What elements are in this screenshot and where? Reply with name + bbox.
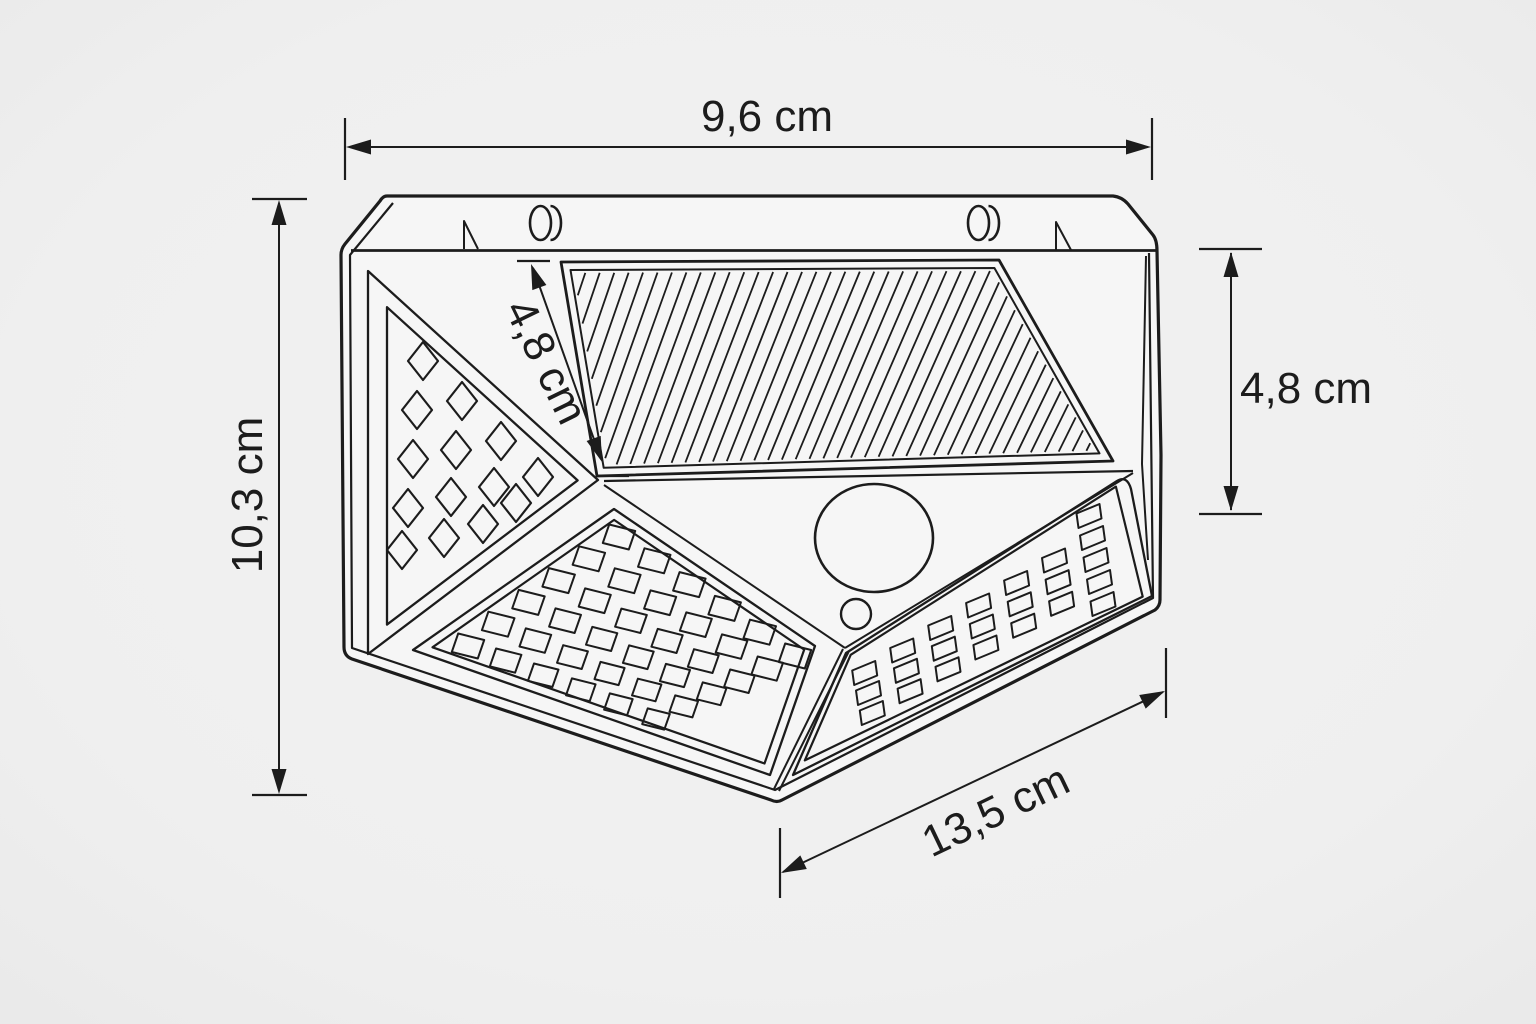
svg-text:9,6 cm: 9,6 cm (701, 92, 833, 141)
svg-text:4,8 cm: 4,8 cm (1240, 364, 1372, 413)
svg-text:10,3 cm: 10,3 cm (223, 417, 272, 574)
